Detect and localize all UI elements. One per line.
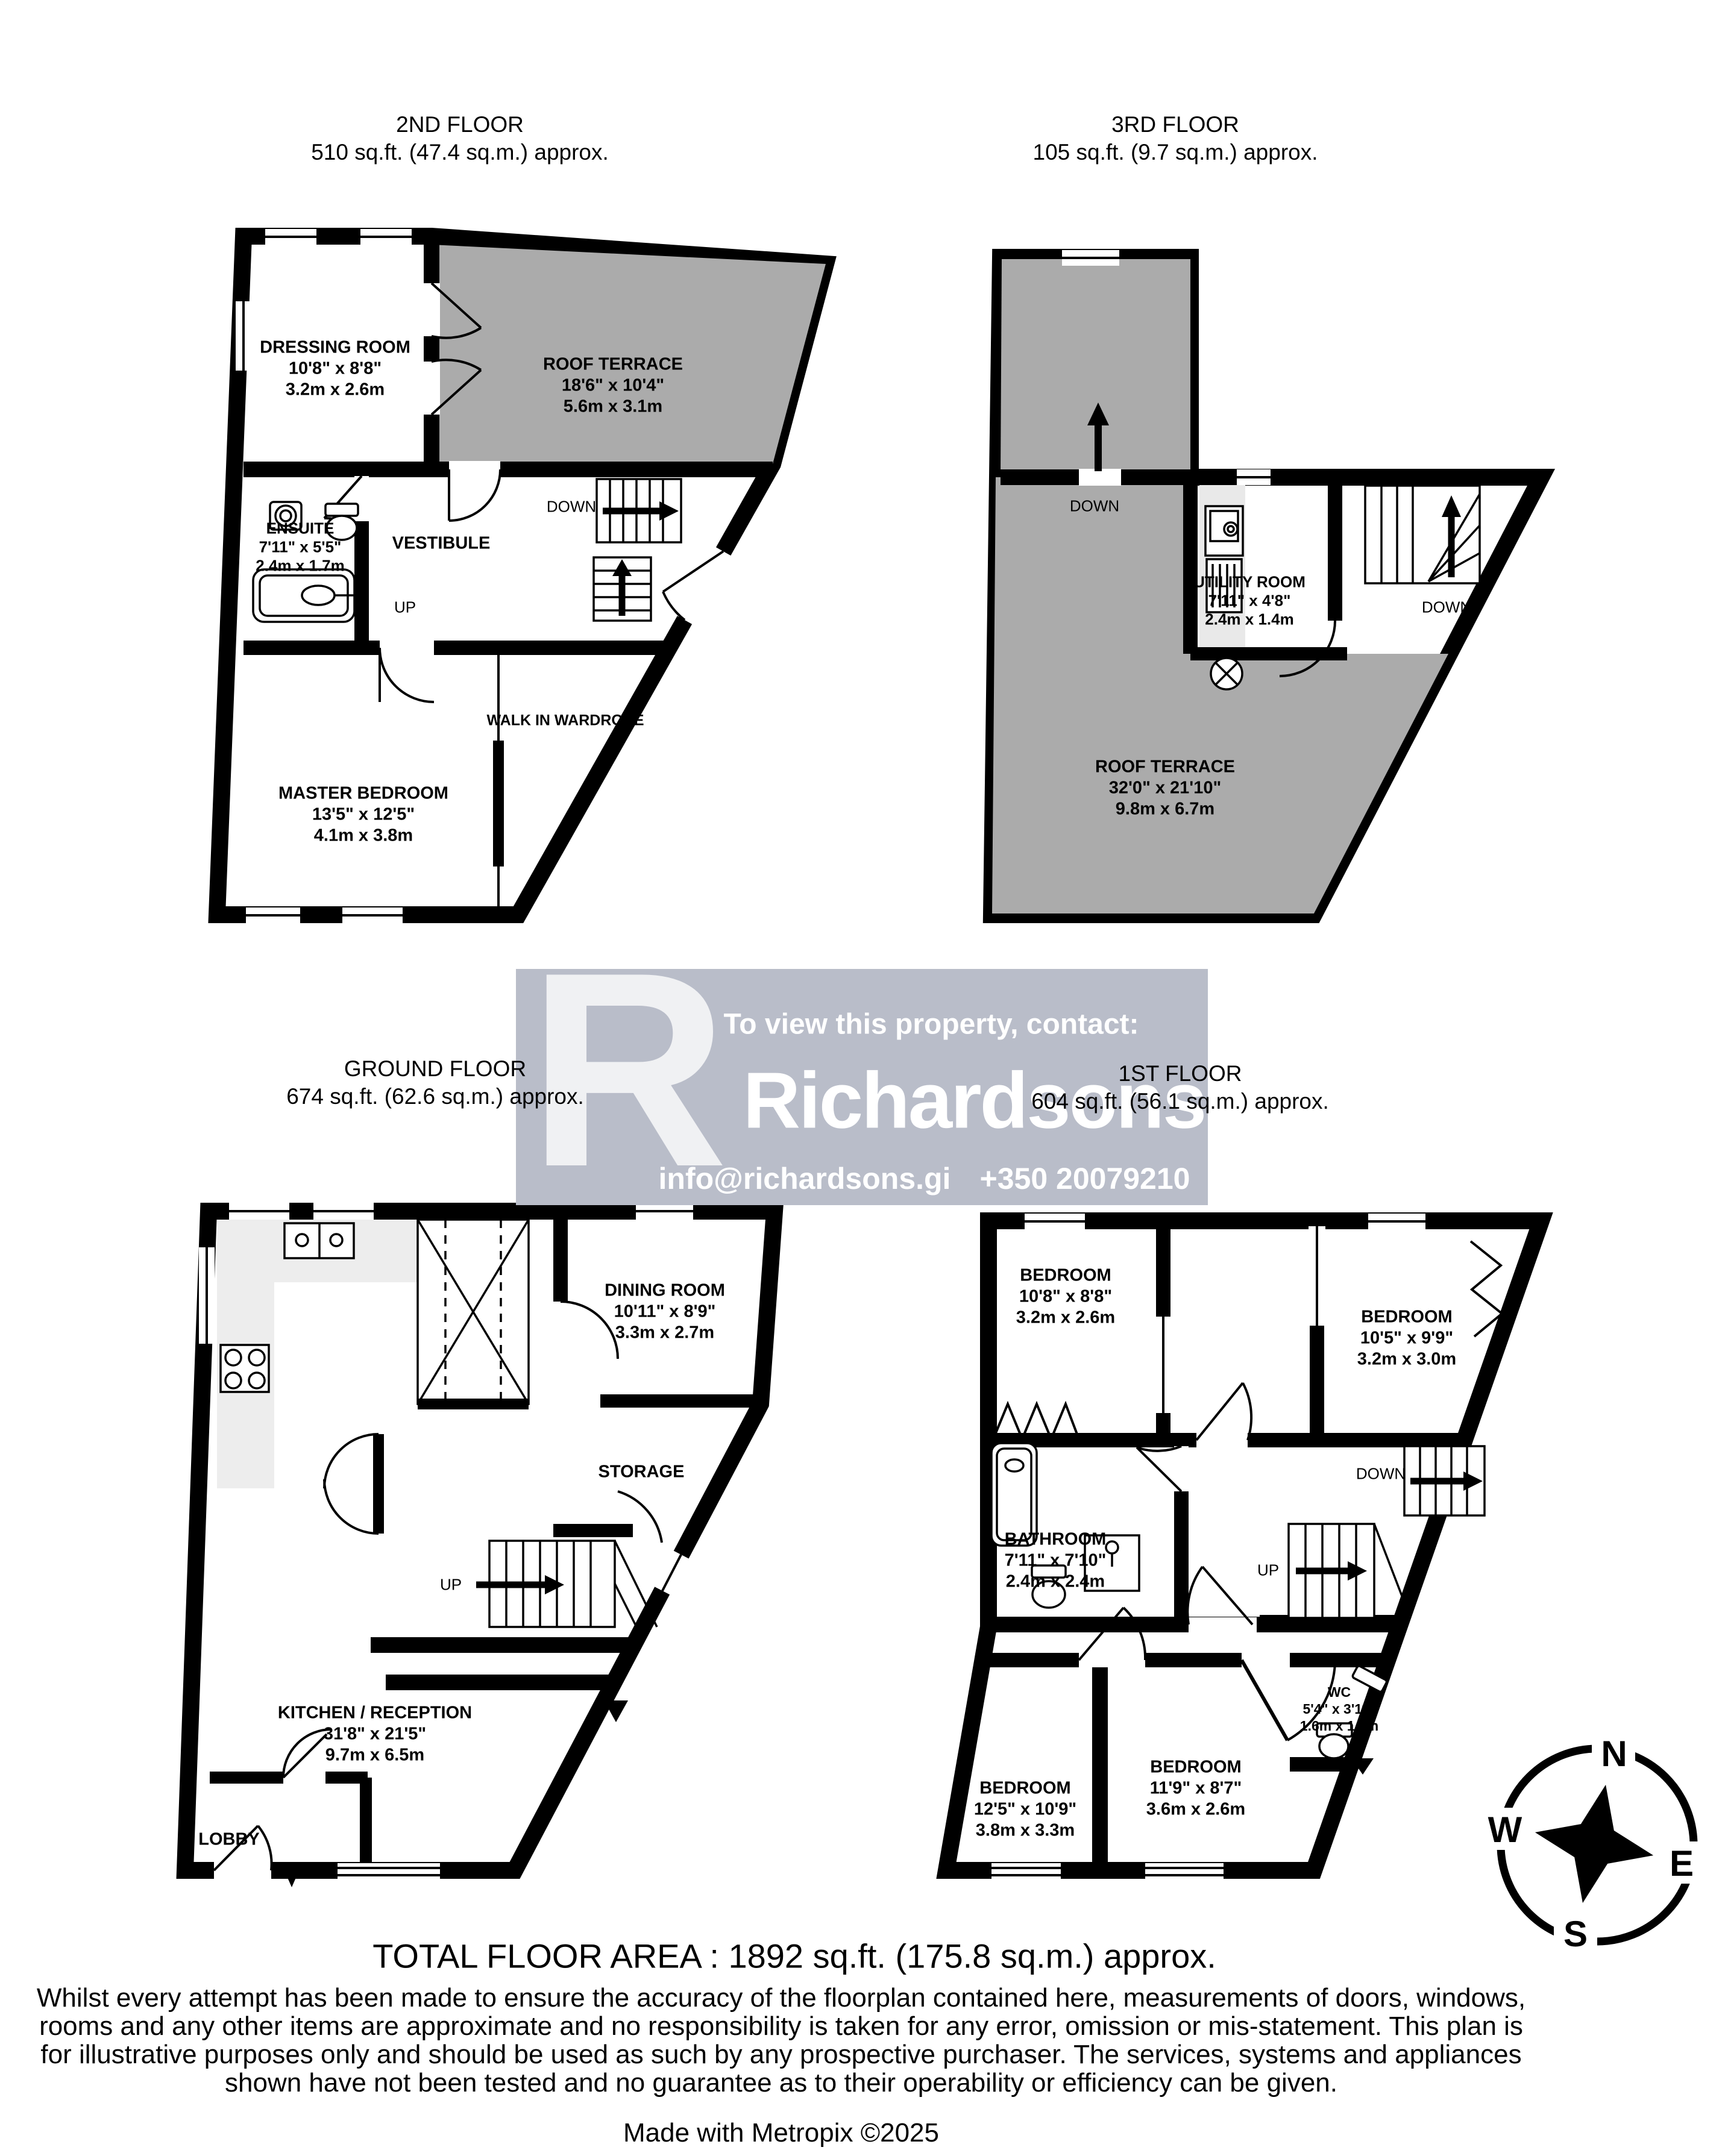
room-name: BEDROOM: [1016, 1265, 1115, 1286]
room-dims-m: 3.2m x 2.6m: [260, 380, 410, 401]
room-dims-ft: 10'11" x 8'9": [605, 1302, 725, 1323]
room-dims-ft: 13'5" x 12'5": [278, 804, 448, 826]
room-name: DINING ROOM: [605, 1280, 725, 1302]
room-dims-ft: 31'8" x 21'5": [278, 1724, 472, 1745]
room-name: WALK IN WARDROBE: [486, 710, 644, 732]
compass-e: E: [1670, 1843, 1694, 1884]
floor-area: 105 sq.ft. (9.7 sq.m.) approx.: [1033, 139, 1318, 166]
compass-s: S: [1563, 1914, 1588, 1954]
stair-annotation-down-3rd: DOWN: [1422, 598, 1471, 617]
compass-w: W: [1488, 1810, 1522, 1850]
room-dims-m: 5.6m x 3.1m: [543, 396, 683, 418]
floor-area: 510 sq.ft. (47.4 sq.m.) approx.: [311, 139, 609, 166]
room-label-kitchen: KITCHEN / RECEPTION 31'8" x 21'5" 9.7m x…: [278, 1703, 472, 1766]
floor-label: 1ST FLOOR: [1031, 1060, 1329, 1088]
room-dims-m: 3.3m x 2.7m: [605, 1323, 725, 1344]
room-label-roof-terrace-2nd: ROOF TERRACE 18'6" x 10'4" 5.6m x 3.1m: [543, 354, 683, 418]
room-name: DRESSING ROOM: [260, 337, 410, 359]
stairs-3rd-down: [1365, 486, 1480, 583]
total-floor-area: TOTAL FLOOR AREA : 1892 sq.ft. (175.8 sq…: [372, 1937, 1216, 1976]
stair-annotation-down-2nd: DOWN: [547, 498, 596, 516]
stairs-1st-down: [1404, 1446, 1485, 1515]
room-name: KITCHEN / RECEPTION: [278, 1703, 472, 1724]
room-dims-ft: 32'0" x 21'10": [1095, 778, 1235, 799]
room-dims-m: 1.6m x 1.2m: [1300, 1717, 1378, 1734]
stair-annotation-up-2nd: UP: [394, 598, 416, 617]
room-label-vestibule: VESTIBULE: [392, 533, 491, 554]
room-dims-m: 2.4m x 1.7m: [256, 557, 344, 575]
room-label-wardrobe: WALK IN WARDROBE: [486, 710, 644, 732]
room-dims-m: 2.4m x 1.4m: [1193, 610, 1306, 629]
stair-annotation-down-1st: DOWN: [1356, 1465, 1406, 1484]
room-label-bedroom-br: BEDROOM 11'9" x 8'7" 3.6m x 2.6m: [1146, 1757, 1245, 1820]
header-1st-floor: 1ST FLOOR 604 sq.ft. (56.1 sq.m.) approx…: [1031, 1060, 1329, 1115]
room-name: UTILITY ROOM: [1193, 573, 1306, 592]
header-2nd-floor: 2ND FLOOR 510 sq.ft. (47.4 sq.m.) approx…: [311, 111, 609, 166]
room-name: MASTER BEDROOM: [278, 783, 448, 804]
room-dims-ft: 7'11" x 4'8": [1193, 592, 1306, 610]
floor-label: GROUND FLOOR: [286, 1055, 584, 1083]
stairs-2nd-up: [594, 557, 651, 621]
room-dims-m: 3.2m x 3.0m: [1357, 1349, 1456, 1370]
room-dims-ft: 7'11" x 5'5": [256, 538, 344, 557]
contact-phone: +350 20079210: [980, 1161, 1190, 1196]
room-label-dressing: DRESSING ROOM 10'8" x 8'8" 3.2m x 2.6m: [260, 337, 410, 401]
room-dims-m: 3.8m x 3.3m: [974, 1820, 1076, 1841]
room-dims-m: 9.7m x 6.5m: [278, 1745, 472, 1766]
room-dims-ft: 18'6" x 10'4": [543, 375, 683, 396]
room-label-bathroom: BATHROOM 7'11" x 7'10" 2.4m x 2.4m: [1005, 1529, 1107, 1593]
stair-annotation-up-1st: UP: [1257, 1561, 1279, 1580]
room-name: BEDROOM: [1146, 1757, 1245, 1778]
room-label-bedroom-tr: BEDROOM 10'5" x 9'9" 3.2m x 3.0m: [1357, 1307, 1456, 1370]
room-name: BEDROOM: [1357, 1307, 1456, 1328]
room-dims-ft: 10'8" x 8'8": [260, 359, 410, 380]
floor-area: 674 sq.ft. (62.6 sq.m.) approx.: [286, 1083, 584, 1111]
floor-area: 604 sq.ft. (56.1 sq.m.) approx.: [1031, 1088, 1329, 1115]
room-label-utility: UTILITY ROOM 7'11" x 4'8" 2.4m x 1.4m: [1193, 573, 1306, 629]
room-dims-m: 3.2m x 2.6m: [1016, 1308, 1115, 1329]
floorplan-page: N W E S R To view this property, contact…: [0, 0, 1725, 2156]
room-dims-m: 4.1m x 3.8m: [278, 826, 448, 847]
contact-email: info@richardsons.gi: [659, 1161, 951, 1196]
room-name: ENSUITE: [256, 519, 344, 538]
disclaimer-text: Whilst every attempt has been made to en…: [22, 1984, 1541, 2097]
room-dims-m: 9.8m x 6.7m: [1095, 799, 1235, 820]
room-dims-ft: 5'4" x 3'11": [1300, 1700, 1378, 1717]
room-label-storage: STORAGE: [599, 1462, 685, 1483]
floor-label: 3RD FLOOR: [1033, 111, 1318, 139]
room-dims-m: 3.6m x 2.6m: [1146, 1799, 1245, 1820]
room-dims-ft: 11'9" x 8'7": [1146, 1778, 1245, 1799]
floor-label: 2ND FLOOR: [311, 111, 609, 139]
room-label-bedroom-bl: BEDROOM 12'5" x 10'9" 3.8m x 3.3m: [974, 1778, 1076, 1841]
stairs-2nd-down: [597, 479, 681, 542]
room-name: BEDROOM: [974, 1778, 1076, 1799]
room-name: VESTIBULE: [392, 533, 491, 554]
room-dims-ft: 10'8" x 8'8": [1016, 1286, 1115, 1308]
room-label-master-bedroom: MASTER BEDROOM 13'5" x 12'5" 4.1m x 3.8m: [278, 783, 448, 847]
compass-star: [1524, 1773, 1665, 1914]
header-ground-floor: GROUND FLOOR 674 sq.ft. (62.6 sq.m.) app…: [286, 1055, 584, 1111]
room-label-wc: WC 5'4" x 3'11" 1.6m x 1.2m: [1300, 1684, 1378, 1734]
room-name: BATHROOM: [1005, 1529, 1107, 1550]
room-name: STORAGE: [599, 1462, 685, 1483]
metropix-credit: Made with Metropix ©2025: [623, 2118, 939, 2148]
room-label-roof-terrace-3rd: ROOF TERRACE 32'0" x 21'10" 9.8m x 6.7m: [1095, 757, 1235, 820]
compass-rose: N W E S: [1483, 1732, 1703, 1955]
banner-heading: To view this property, contact:: [724, 1008, 1139, 1041]
room-name: WC: [1300, 1684, 1378, 1700]
room-dims-ft: 12'5" x 10'9": [974, 1799, 1076, 1820]
header-3rd-floor: 3RD FLOOR 105 sq.ft. (9.7 sq.m.) approx.: [1033, 111, 1318, 166]
compass-n: N: [1601, 1734, 1627, 1774]
room-name: LOBBY: [198, 1829, 260, 1850]
room-name: ROOF TERRACE: [543, 354, 683, 375]
stair-annotation-up-ground: UP: [440, 1576, 462, 1594]
room-name: ROOF TERRACE: [1095, 757, 1235, 778]
room-label-ensuite: ENSUITE 7'11" x 5'5" 2.4m x 1.7m: [256, 519, 344, 575]
stair-annotation-down-strip: DOWN: [1070, 497, 1119, 516]
room-dims-ft: 10'5" x 9'9": [1357, 1328, 1456, 1349]
room-dims-m: 2.4m x 2.4m: [1005, 1572, 1107, 1593]
room-label-lobby: LOBBY: [198, 1829, 260, 1850]
room-label-dining: DINING ROOM 10'11" x 8'9" 3.3m x 2.7m: [605, 1280, 725, 1344]
room-label-bedroom-tl: BEDROOM 10'8" x 8'8" 3.2m x 2.6m: [1016, 1265, 1115, 1329]
room-dims-ft: 7'11" x 7'10": [1005, 1550, 1107, 1572]
